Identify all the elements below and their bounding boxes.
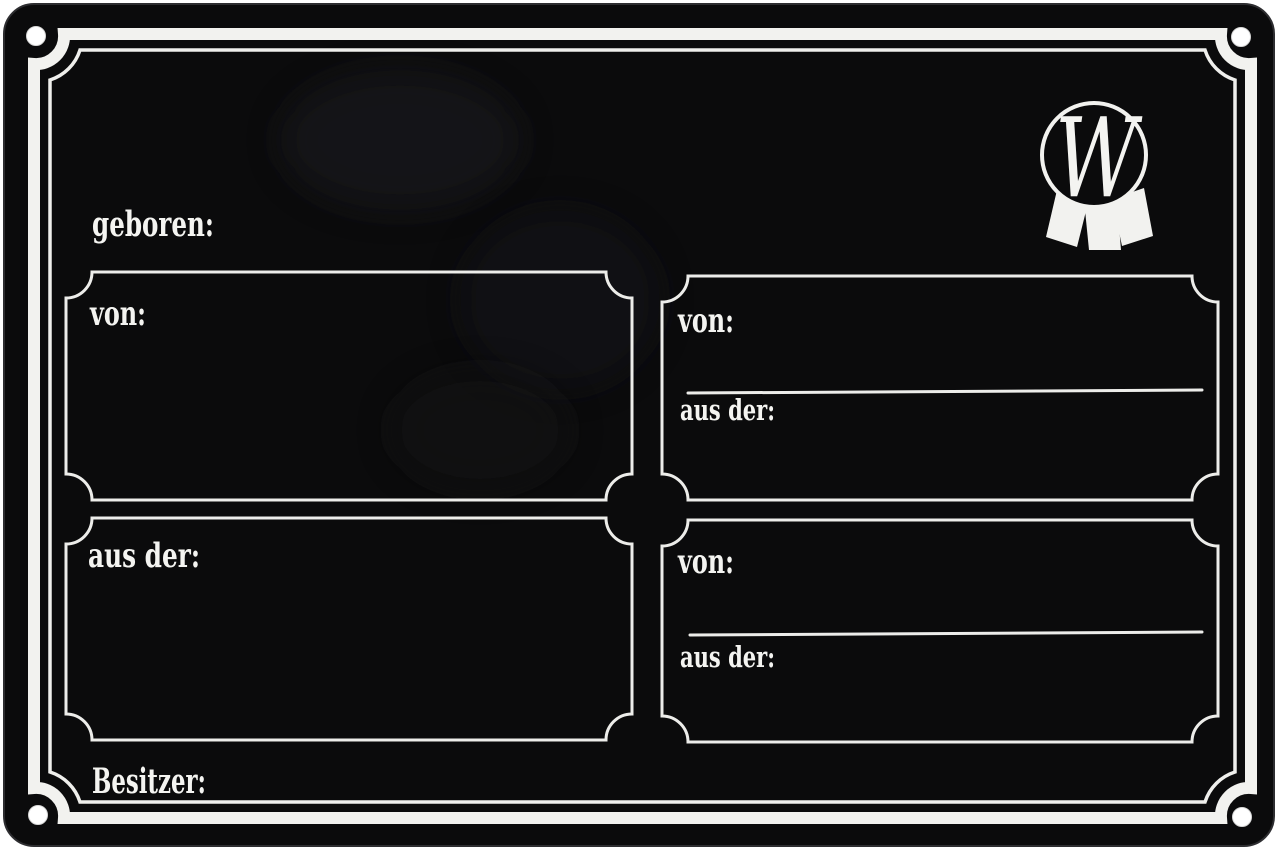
born-label: geboren: bbox=[92, 204, 214, 245]
stable-sign-photo: geboren: von: von: aus der: aus der: von… bbox=[0, 0, 1285, 852]
screw-hole-bottom-left bbox=[29, 806, 48, 825]
sign-canvas: geboren: von: von: aus der: aus der: von… bbox=[0, 0, 1285, 852]
panel-top-right-aus-der-label: aus der: bbox=[680, 393, 775, 427]
screw-hole-bottom-right bbox=[1233, 808, 1252, 827]
rosette-ribbon-badge-icon: W bbox=[1042, 94, 1153, 250]
screw-hole-top-right bbox=[1232, 28, 1251, 47]
panel-bottom-left-aus-der-label: aus der: bbox=[88, 536, 200, 576]
panel-bottom-right-von-label: von: bbox=[677, 542, 734, 582]
screw-hole-top-left bbox=[27, 27, 46, 46]
panel-top-right-von-label: von: bbox=[677, 301, 734, 341]
owner-label: Besitzer: bbox=[92, 761, 206, 802]
panel-top-left-von-label: von: bbox=[89, 294, 146, 334]
panel-bottom-right-aus-der-label: aus der: bbox=[680, 640, 775, 674]
logo-letter: W bbox=[1055, 94, 1143, 222]
